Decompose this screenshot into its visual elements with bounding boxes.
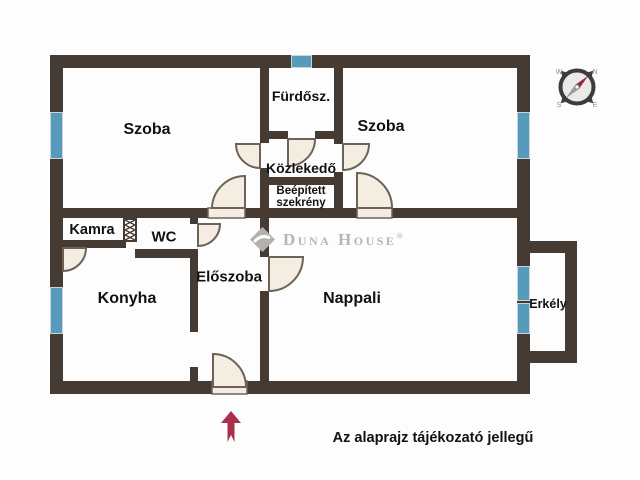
wall	[50, 55, 63, 394]
wall	[190, 367, 198, 381]
door-arc	[357, 173, 392, 208]
watermark-text: Duna House®	[283, 230, 405, 250]
room-label-kamra: Kamra	[69, 222, 114, 238]
wall	[190, 253, 198, 332]
room-label-kozlekedo: Közlekedő	[266, 160, 336, 176]
svg-text:N: N	[592, 69, 597, 76]
wall	[50, 381, 530, 394]
disclaimer-text: Az alaprajz tájékozató jellegű	[333, 430, 534, 446]
wall	[315, 131, 343, 139]
wall	[517, 55, 530, 394]
wall	[190, 218, 198, 224]
window	[517, 112, 530, 159]
window	[517, 303, 530, 334]
window	[50, 112, 63, 159]
wall	[260, 177, 343, 185]
svg-text:W: W	[556, 69, 563, 76]
svg-text:S: S	[557, 102, 562, 109]
wall	[260, 131, 288, 139]
door-arc	[63, 248, 86, 271]
room-label-nappali: Nappali	[323, 290, 381, 308]
wall	[52, 240, 126, 248]
window	[50, 287, 63, 334]
balcony-wall	[530, 351, 577, 363]
room-label-szekreny: Beépített szekrény	[265, 185, 337, 209]
door-leaf	[208, 208, 245, 218]
wall	[135, 249, 198, 258]
room-label-eloszoba: Előszoba	[196, 269, 262, 286]
wall	[392, 208, 517, 218]
svg-text:E: E	[593, 102, 598, 109]
door-arc	[269, 257, 303, 291]
room-label-furdoszoba: Fürdősz.	[272, 88, 330, 104]
door-arc	[198, 224, 220, 246]
door-arc	[236, 144, 260, 168]
dunahouse-logo-icon	[249, 226, 276, 253]
wall	[260, 55, 269, 143]
window	[291, 55, 312, 68]
room-label-szoba-right: Szoba	[357, 118, 404, 136]
brand-watermark: Duna House®	[249, 226, 405, 253]
wall	[260, 291, 269, 381]
window	[517, 266, 530, 301]
room-label-konyha: Konyha	[98, 290, 157, 308]
entrance-arrow-icon	[221, 411, 241, 442]
wall	[50, 208, 208, 218]
wall	[50, 55, 530, 68]
flue-shaft	[123, 218, 137, 242]
room-label-szoba-left: Szoba	[123, 121, 170, 139]
room-label-erkely: Erkély	[529, 297, 567, 311]
floorplan-canvas: Szoba Fürdősz. Szoba Közlekedő Beépített…	[0, 0, 640, 480]
registered-mark: ®	[396, 231, 404, 240]
door-arc	[343, 144, 369, 170]
door-leaf	[357, 208, 392, 218]
door-arc	[212, 176, 245, 208]
room-label-wc: WC	[152, 229, 177, 246]
compass-icon: W N S E	[552, 62, 602, 112]
